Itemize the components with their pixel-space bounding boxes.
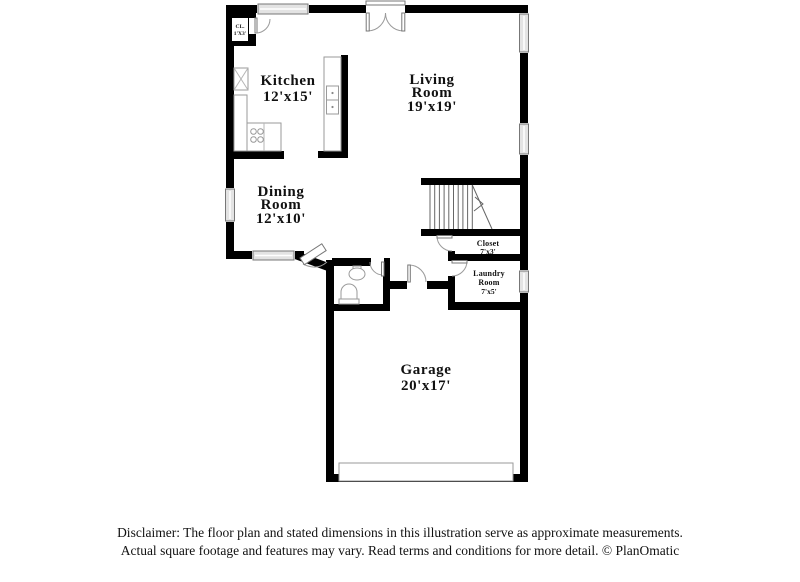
laundry-label: Room [478,278,499,287]
kitchen-label: Kitchen [260,73,315,89]
window-kitchen-top [257,3,309,15]
entry-closet-label: CL. [235,24,245,30]
disclaimer: Disclaimer: The floor plan and stated di… [0,524,800,560]
door-threshold [366,1,405,5]
wall-garage-left [326,260,334,482]
laundry-label: Laundry [473,269,505,278]
front-double-door [366,1,405,31]
window-dining-bottom [252,250,295,261]
door-arc [256,19,270,33]
garage-dims: 20'x17' [401,378,451,394]
wall-bath-bottom [326,304,390,311]
floor-plan-drawing: Kitchen 12'x15' Living Room 19'x19' Dini… [0,0,800,582]
living-room-dims: 19'x19' [407,99,457,115]
door-leaf [402,13,405,31]
window-living-right-upper [518,13,530,53]
stove [247,123,281,151]
hall-garage-door [408,265,426,282]
door-arc [386,13,404,31]
wall-stairs-bottom [421,229,521,236]
kitchen-island-sink [324,57,341,151]
kitchen-counter-left [234,95,247,151]
kitchen-dims: 12'x15' [263,89,313,105]
staircase [430,185,492,229]
window-living-right-lower [518,123,530,155]
door-arc [368,13,386,31]
closet-dims: 7'x3' [480,247,495,256]
garage-label: Garage [400,362,451,378]
toilet [339,284,359,304]
door-arc [409,265,426,282]
wall-bath-top [332,258,372,266]
wall-kitchen-island [341,55,348,158]
door-leaf [366,13,369,31]
floor-plan-page: Kitchen 12'x15' Living Room 19'x19' Dini… [0,0,800,582]
window-laundry-right [518,270,530,293]
wall-laundry-bottom [448,302,521,310]
dining-room-dims: 12'x10' [256,211,306,227]
bathroom-sink [349,266,365,280]
door-leaf [255,18,257,33]
door-leaf [408,265,411,282]
laundry-dims: 7'x5' [481,287,496,296]
room-labels: Kitchen 12'x15' Living Room 19'x19' Dini… [234,24,505,394]
window-dining-left [224,188,236,222]
garage-overhead-door [339,463,513,481]
doors [255,1,467,282]
door-leaf [437,236,452,239]
pantry-cabinet [234,68,248,90]
entry-closet-dims: 1'X3' [234,31,247,37]
wall-stairs-top [421,178,521,185]
wall-right [520,5,528,482]
disclaimer-line-2: Actual square footage and features may v… [0,542,800,560]
wall-kitchen-bottom [226,151,284,159]
stair-diagonal [472,185,492,229]
disclaimer-line-1: Disclaimer: The floor plan and stated di… [0,524,800,542]
door-leaf [382,262,385,276]
door-leaf [452,261,467,264]
entry-closet-door [255,18,270,33]
bathroom-fixtures [339,266,365,304]
